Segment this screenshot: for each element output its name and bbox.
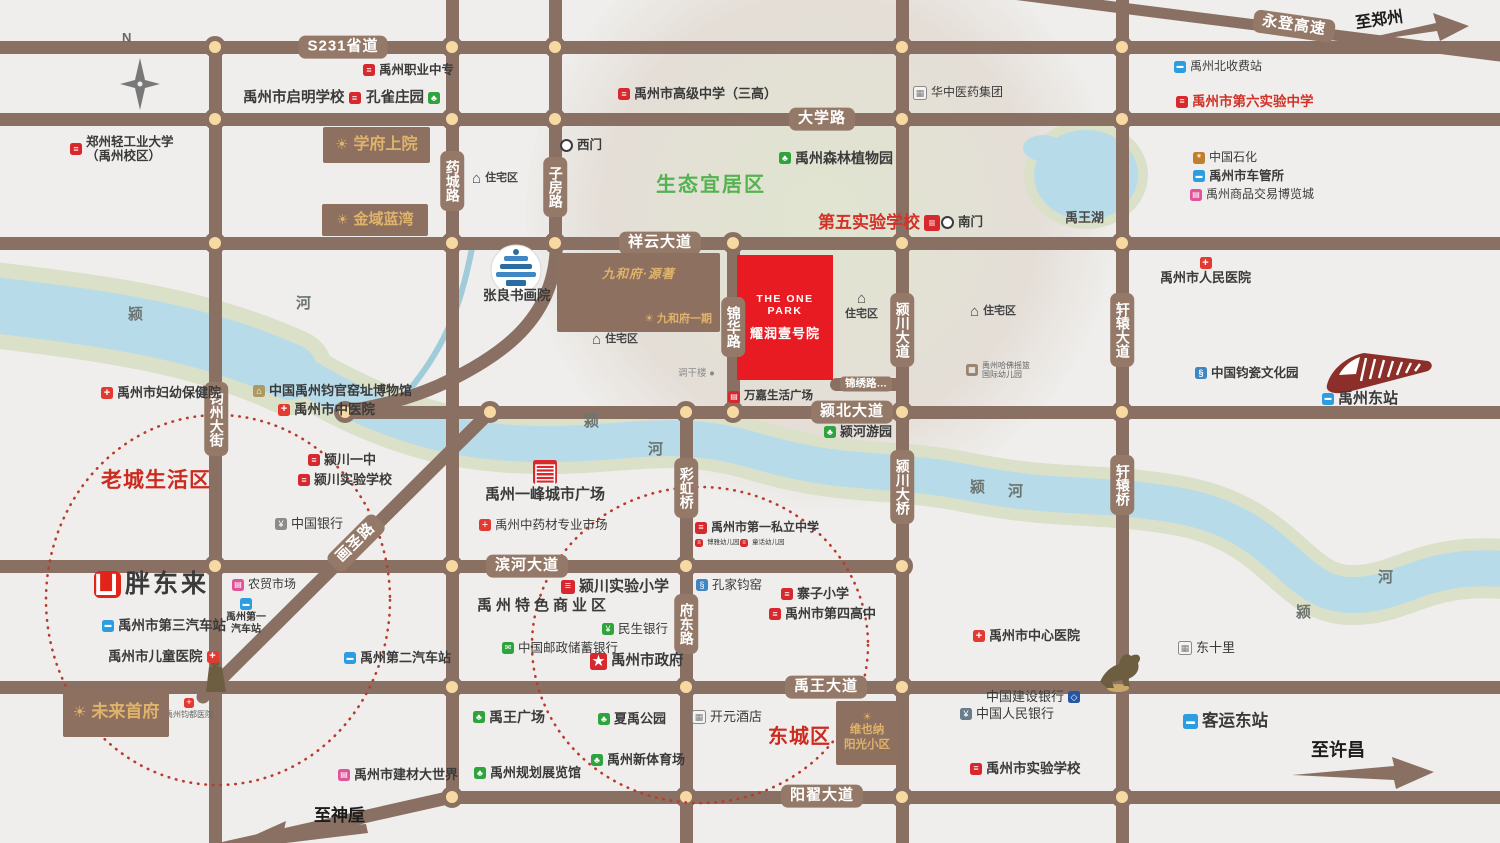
yinghe-riverside-park: ♣颍河游园 xyxy=(824,425,892,440)
huazhong-pharma-group: ▦华中医药集团 xyxy=(913,86,1003,100)
diaoganlou: 调干楼 ● xyxy=(678,369,715,380)
pangdonglai: ⊔胖东来 xyxy=(94,570,209,599)
yuzhou-vocational-school-label: 禹州职业中专 xyxy=(379,63,454,77)
minsheng-bank-bank-icon: ¥ xyxy=(602,623,614,635)
residential-area-4-label: 住宅区 xyxy=(983,305,1016,318)
planning-exhibition-hall-label: 禹州规划展览馆 xyxy=(490,766,581,781)
yingchuan-experimental-primary-school-icon: ≡ xyxy=(561,580,575,594)
yingchuan-no1-middle-school-school-icon: ≡ xyxy=(308,454,320,466)
yuwang-lake-label: 禹王湖 xyxy=(1065,211,1104,226)
jiuhefu-block-sub-label: 九和府一期 xyxy=(657,313,712,326)
kongjia-kiln: §孔家钧窑 xyxy=(696,578,762,592)
yingchuan-experimental-school-school-icon: ≡ xyxy=(298,474,310,486)
kaiyuan-hotel-building-icon: ▦ xyxy=(692,710,706,724)
west-gate-gate-icon xyxy=(560,139,573,152)
east-bus-station-bus-icon: ▬ xyxy=(1183,714,1198,729)
residential-area-1: ⌂住宅区 xyxy=(472,171,518,186)
no1-private-middle-school-label: 禹州市第一私立中学 xyxy=(711,521,819,535)
map-canvas: N THE ONE PARK 耀润壹号院 S231省道大学路祥云大道颍北大道滨河… xyxy=(0,0,1500,843)
kindergarten-1-school-icon: ≡ xyxy=(695,539,703,547)
pangdonglai-cart-icon: ⊔ xyxy=(94,571,121,598)
compass: N xyxy=(122,30,131,45)
east-bus-station: ▬客运东站 xyxy=(1183,712,1268,731)
west-gate: 西门 xyxy=(560,138,602,152)
qiming-school-school-icon: ≡ xyxy=(349,92,361,104)
to-shenhou-label: 至神垕 xyxy=(314,801,365,826)
yuzhou-senior-high-school-label: 禹州市高级中学（三高） xyxy=(634,87,777,102)
yifeng-city-plaza: ▤禹州一峰城市广场 xyxy=(485,460,605,503)
building-materials-world-label: 禹州市建材大世界 xyxy=(354,768,458,783)
residential-area-4-house-icon: ⌂ xyxy=(970,304,979,319)
planning-exhibition-hall: ♣禹州规划展览馆 xyxy=(474,766,581,781)
dongshili: ▦东十里 xyxy=(1178,641,1235,656)
no1-private-middle-school: ≡禹州市第一私立中学 xyxy=(695,521,819,535)
new-stadium-tree-icon: ♣ xyxy=(591,754,603,766)
caihong-bridge-label: 彩虹桥 xyxy=(674,458,698,518)
jinyu-lanwan-block: ☀金域蓝湾 xyxy=(322,204,428,236)
zhaizi-primary-school-label: 寨子小学 xyxy=(797,587,849,602)
yingchuan-avenue-label: 颍川大道 xyxy=(890,293,914,367)
south-gate-gate-icon xyxy=(941,216,954,229)
river-name-char-4: 颍 xyxy=(970,476,985,497)
xiangyun-avenue-label: 祥云大道 xyxy=(619,232,701,255)
vienna-sunshine-block-label: 阳光小区 xyxy=(844,739,890,753)
yaocheng-road-label: 药城路 xyxy=(440,151,464,211)
yongdeng-expressway-label: 永登高速 xyxy=(1252,9,1336,43)
dongshili-label: 东十里 xyxy=(1196,641,1235,656)
city-government: ★禹州市政府 xyxy=(590,653,684,670)
eco-livable-area-label: 生态宜居区 xyxy=(656,168,766,197)
new-stadium: ♣禹州新体育场 xyxy=(591,753,685,768)
jundu-hospital-label: 禹州钧都医院 xyxy=(165,710,213,719)
building-materials-world-market-icon: ▤ xyxy=(338,769,350,781)
residential-area-3-label: 住宅区 xyxy=(845,308,878,321)
yifeng-city-plaza-label: 禹州一峰城市广场 xyxy=(485,486,605,503)
yuwang-square-label: 禹王广场 xyxy=(489,709,545,725)
city-government-label: 禹州市政府 xyxy=(611,653,684,670)
central-hospital: +禹州市中心医院 xyxy=(973,629,1080,644)
children-hospital: 禹州市儿童医院+ xyxy=(108,649,219,665)
postal-savings-bank-post-icon: ✉ xyxy=(502,642,514,654)
tcm-hospital-label: 禹州市中医院 xyxy=(294,402,375,418)
residential-area-2: ⌂住宅区 xyxy=(592,332,638,347)
wanjia-life-plaza-label: 万嘉生活广场 xyxy=(744,390,813,403)
children-hospital-hospital-icon: + xyxy=(207,651,219,663)
east-bus-station-label: 客运东站 xyxy=(1202,712,1268,731)
south-gate-label: 南门 xyxy=(958,215,983,229)
central-hospital-hospital-icon: + xyxy=(973,630,985,642)
pboc-bank: ¥中国人民银行 xyxy=(960,707,1054,722)
yangzhai-avenue-label: 阳翟大道 xyxy=(781,785,863,808)
zhengzhou-light-industry-university-school-icon: ≡ xyxy=(70,143,82,155)
residential-area-3-house-icon: ⌂ xyxy=(857,291,866,306)
yuwang-avenue-label: 禹王大道 xyxy=(785,676,867,699)
experimental-school-school-icon: ≡ xyxy=(970,763,982,775)
qiming-school-label: 禹州市启明学校 xyxy=(243,90,345,107)
yingchuan-experimental-school: ≡颍川实验学校 xyxy=(298,473,392,488)
no1-private-middle-school-school-icon: ≡ xyxy=(695,522,707,534)
pangdonglai-label: 胖东来 xyxy=(125,570,209,599)
yuwang-square-tree-icon: ♣ xyxy=(473,711,485,723)
tcm-hospital: +禹州市中医院 xyxy=(278,402,375,418)
river-name-char-7: 颍 xyxy=(1296,601,1311,622)
bank-of-china: ¥中国银行 xyxy=(275,517,343,532)
sixth-experimental-middle-school: ≡禹州市第六实验中学 xyxy=(1176,94,1314,110)
xuefu-shangyuan-block: ☀学府上院 xyxy=(323,127,430,163)
kindergarten-2-label: 童话幼儿园 xyxy=(752,539,785,546)
kindergarten-2-school-icon: ≡ xyxy=(740,539,748,547)
forest-botanical-garden: ♣禹州森林植物园 xyxy=(779,150,893,166)
compass-north-label: N xyxy=(122,30,131,45)
forest-botanical-garden-label: 禹州森林植物园 xyxy=(795,150,893,166)
zhengzhou-light-industry-university: ≡郑州轻工业大学（禹州校区） xyxy=(70,135,174,164)
weilai-shoufu-block-logo-icon: ☀ xyxy=(73,705,87,720)
yinghe-riverside-park-tree-icon: ♣ xyxy=(824,426,836,438)
no2-bus-station-bus-icon: ▬ xyxy=(344,652,356,664)
yingchuan-experimental-primary-label: 颍川实验小学 xyxy=(579,578,669,595)
residential-area-3: ⌂住宅区 xyxy=(845,291,878,321)
peacock-manor-tree-icon: ♣ xyxy=(428,92,440,104)
tcm-materials-market-label: 禹州中药材专业市场 xyxy=(495,518,608,532)
river-name-char-0: 颍 xyxy=(128,303,143,324)
zhengzhou-light-industry-university-label: 郑州轻工业大学（禹州校区） xyxy=(86,135,174,164)
kindergarten-1: ≡博雅幼儿园 xyxy=(695,539,740,547)
river-name-char-5: 河 xyxy=(1008,480,1023,501)
yingchuan-bridge-label: 颍川大桥 xyxy=(890,450,914,524)
yuzhou-senior-high-school-school-icon: ≡ xyxy=(618,88,630,100)
commodity-expo-city-expo-icon: ▤ xyxy=(1190,189,1202,201)
vienna-sunshine-block-logo-icon: ☀ xyxy=(862,713,871,723)
farmers-market-market-icon: ▤ xyxy=(232,579,244,591)
maternal-child-health-hospital-hospital-icon: + xyxy=(101,387,113,399)
farmers-market: ▤农贸市场 xyxy=(232,578,296,592)
bank-of-china-label: 中国银行 xyxy=(291,517,343,532)
wanjia-life-plaza-mall-icon: ▤ xyxy=(728,391,740,403)
sinopec: *中国石化 xyxy=(1193,151,1257,165)
xuefu-shangyuan-block-label: 学府上院 xyxy=(353,135,417,154)
river-name-char-1: 河 xyxy=(296,292,311,313)
west-gate-label: 西门 xyxy=(577,138,602,152)
fifth-experimental-school-school-icon: ≡ xyxy=(924,215,940,231)
yuwang-lake-label-label: 禹王湖 xyxy=(1065,211,1104,226)
zhaizi-primary-school: ≡寨子小学 xyxy=(781,587,849,602)
sixth-experimental-middle-school-label: 禹州市第六实验中学 xyxy=(1192,94,1314,110)
central-hospital-label: 禹州市中心医院 xyxy=(989,629,1080,644)
jiuhefu-block-sub-row: ☀九和府一期 xyxy=(565,313,712,326)
kaiyuan-hotel-label: 开元酒店 xyxy=(710,710,762,725)
peoples-hospital: +禹州市人民医院 xyxy=(1160,257,1251,286)
minsheng-bank-label: 民生银行 xyxy=(618,622,668,636)
no4-high-school: ≡禹州市第四高中 xyxy=(769,607,876,622)
no3-bus-station-bus-icon: ▬ xyxy=(102,620,114,632)
no2-bus-station-label: 禹州第二汽车站 xyxy=(360,651,451,666)
yinghe-riverside-park-label: 颍河游园 xyxy=(840,425,892,440)
kongjia-kiln-label: 孔家钧窑 xyxy=(712,578,762,592)
yingbei-avenue-label: 颍北大道 xyxy=(811,401,893,424)
zifang-road-label: 子房路 xyxy=(543,157,567,217)
kindergarten-2: ≡童话幼儿园 xyxy=(740,539,785,547)
ccb-bank-ccb-icon: ◇ xyxy=(1068,691,1080,703)
yuzhou-east-station-train-icon: ▬ xyxy=(1322,393,1334,405)
project-name-en: THE ONE PARK xyxy=(737,293,833,317)
residential-area-2-label: 住宅区 xyxy=(605,333,638,346)
xuanyuan-avenue-label: 轩辕大道 xyxy=(1110,293,1134,367)
forest-botanical-garden-tree-icon: ♣ xyxy=(779,152,791,164)
new-stadium-label: 禹州新体育场 xyxy=(607,753,685,768)
jun-kiln-site-museum: ⌂中国禹州钧官窑址博物馆 xyxy=(253,384,412,399)
no2-bus-station: ▬禹州第二汽车站 xyxy=(344,651,451,666)
kongjia-kiln-vase-icon: § xyxy=(696,579,708,591)
weilai-shoufu-block-label: 未来首府 xyxy=(91,702,159,722)
experimental-school: ≡禹州市实验学校 xyxy=(970,761,1081,777)
yingchuan-no1-middle-school: ≡颍川一中 xyxy=(308,453,376,468)
label-layer: N THE ONE PARK 耀润壹号院 S231省道大学路祥云大道颍北大道滨河… xyxy=(0,0,1500,843)
residential-area-2-house-icon: ⌂ xyxy=(592,332,601,347)
children-hospital-label: 禹州市儿童医院 xyxy=(108,649,203,665)
building-materials-world: ▤禹州市建材大世界 xyxy=(338,768,458,783)
vehicle-administration: ▬禹州市车管所 xyxy=(1193,169,1284,183)
north-toll-station-toll-icon: ▬ xyxy=(1174,61,1186,73)
farmers-market-label: 农贸市场 xyxy=(248,578,296,592)
no3-bus-station-label: 禹州市第三汽车站 xyxy=(118,618,226,634)
huazhong-pharma-group-building-icon: ▦ xyxy=(913,86,927,100)
junci-culture-park: §中国钧瓷文化园 xyxy=(1195,366,1299,380)
vienna-sunshine-block-label: 维也纳 xyxy=(850,724,885,738)
kaiyuan-hotel: ▦开元酒店 xyxy=(692,710,762,725)
tcm-materials-market-hospital-icon: + xyxy=(479,519,491,531)
jundu-hospital: +禹州钧都医院 xyxy=(165,698,213,719)
jinxiu-road-label: 锦绣路… xyxy=(840,376,892,391)
peoples-hospital-hospital-icon: + xyxy=(1200,257,1212,269)
jiuhefu-block-script-label: 九和府·源著 xyxy=(565,267,712,282)
vienna-sunshine-block: ☀维也纳阳光小区 xyxy=(836,701,898,765)
jinhua-road-label: 锦华路 xyxy=(721,297,745,357)
jinyu-lanwan-block-label: 金域蓝湾 xyxy=(354,211,414,229)
commodity-expo-city-label: 禹州商品交易博览城 xyxy=(1206,188,1314,202)
yuzhou-vocational-school: ≡禹州职业中专 xyxy=(363,63,454,77)
residential-area-4: ⌂住宅区 xyxy=(970,304,1016,319)
jiuhefu-block-logo-icon: ☀ xyxy=(644,314,654,325)
vehicle-administration-label: 禹州市车管所 xyxy=(1209,169,1284,183)
xiayu-park-tree-icon: ♣ xyxy=(598,713,610,725)
jiuhefu-block: 九和府·源著☀九和府一期 xyxy=(557,253,720,332)
north-toll-station: ▬禹州北收费站 xyxy=(1174,60,1262,74)
peacock-manor: 孔雀庄园♣ xyxy=(366,90,440,107)
river-name-char-6: 河 xyxy=(1378,566,1393,587)
pboc-bank-pboc-icon: ¥ xyxy=(960,708,972,720)
south-gate: 南门 xyxy=(941,215,983,229)
ccb-bank-label: 中国建设银行 xyxy=(986,690,1064,705)
pboc-bank-label: 中国人民银行 xyxy=(976,707,1054,722)
yifeng-city-plaza-plaza-icon: ▤ xyxy=(533,460,557,484)
xuefu-shangyuan-block-logo-icon: ☀ xyxy=(336,138,349,152)
tcm-hospital-hospital-icon: + xyxy=(278,404,290,416)
xiayu-park-label: 夏禹公园 xyxy=(614,712,666,727)
commodity-expo-city: ▤禹州商品交易博览城 xyxy=(1190,188,1314,202)
no1-bus-station: ▬禹州第一汽车站 xyxy=(226,598,266,635)
yuzhou-east-station: ▬禹州东站 xyxy=(1322,390,1398,407)
yuzhou-east-station-label: 禹州东站 xyxy=(1338,390,1398,407)
yuzhou-senior-high-school: ≡禹州市高级中学（三高） xyxy=(618,87,777,102)
sinopec-label: 中国石化 xyxy=(1209,151,1257,165)
project-name-cn: 耀润壹号院 xyxy=(750,323,820,342)
jun-kiln-site-museum-label: 中国禹州钧官窑址博物馆 xyxy=(269,384,412,399)
bank-of-china-boc-icon: ¥ xyxy=(275,518,287,530)
specialty-commercial-area: 禹州特色商业区 xyxy=(477,597,610,614)
zhaizi-primary-school-school-icon: ≡ xyxy=(781,588,793,600)
river-name-char-3: 河 xyxy=(648,438,663,459)
junci-culture-park-label: 中国钧瓷文化园 xyxy=(1211,366,1299,380)
no3-bus-station: ▬禹州市第三汽车站 xyxy=(102,618,226,634)
ccb-bank: 中国建设银行◇ xyxy=(986,690,1080,705)
peacock-manor-label: 孔雀庄园 xyxy=(366,90,424,107)
weilai-shoufu-block: ☀未来首府 xyxy=(63,688,169,737)
to-zhengzhou-label: 至郑州 xyxy=(1354,3,1405,33)
harvard-cradle-kindergarten-label: 禹州哈佛摇篮国际幼儿园 xyxy=(982,361,1030,379)
sixth-experimental-middle-school-school-icon: ≡ xyxy=(1176,96,1188,108)
peoples-hospital-label: 禹州市人民医院 xyxy=(1160,271,1251,286)
old-town-area-label: 老城生活区 xyxy=(101,464,211,494)
dongshili-building-icon: ▦ xyxy=(1178,641,1192,655)
kindergarten-1-label: 博雅幼儿园 xyxy=(707,539,740,546)
vehicle-administration-traffic-icon: ▬ xyxy=(1193,170,1205,182)
no4-high-school-school-icon: ≡ xyxy=(769,608,781,620)
junci-culture-park-vase-icon: § xyxy=(1195,367,1207,379)
zhangliang-academy: 张良书画院 xyxy=(483,288,551,304)
binhe-avenue-label: 滨河大道 xyxy=(486,555,568,578)
east-city-area-label: 东城区 xyxy=(768,720,831,749)
tcm-materials-market: +禹州中药材专业市场 xyxy=(479,518,608,532)
fifth-experimental-school: 第五实验学校≡ xyxy=(818,213,940,233)
the-one-park-block: THE ONE PARK 耀润壹号院 xyxy=(737,255,833,380)
jundu-hospital-hospital-icon: + xyxy=(184,698,194,708)
city-government-gov-icon: ★ xyxy=(590,653,607,670)
yingchuan-experimental-school-label: 颍川实验学校 xyxy=(314,473,392,488)
north-toll-station-label: 禹州北收费站 xyxy=(1190,60,1262,74)
specialty-commercial-area-label: 禹州特色商业区 xyxy=(477,597,610,614)
experimental-school-label: 禹州市实验学校 xyxy=(986,761,1081,777)
fifth-experimental-school-label: 第五实验学校 xyxy=(818,213,920,233)
residential-area-1-label: 住宅区 xyxy=(485,172,518,185)
xuanyuan-bridge-label: 轩辕桥 xyxy=(1110,455,1134,515)
river-name-char-2: 颍 xyxy=(584,410,599,431)
to-xuchang-label: 至许昌 xyxy=(1311,736,1365,762)
no1-bus-station-label: 禹州第一汽车站 xyxy=(226,612,266,635)
maternal-child-health-hospital-label: 禹州市妇幼保健院 xyxy=(117,386,221,401)
s231-label: S231省道 xyxy=(298,36,387,59)
daxue-road-label: 大学路 xyxy=(789,108,855,131)
planning-exhibition-hall-tree-icon: ♣ xyxy=(474,767,486,779)
yingchuan-experimental-primary: ≡颍川实验小学 xyxy=(561,578,669,595)
maternal-child-health-hospital: +禹州市妇幼保健院 xyxy=(101,386,221,401)
wanjia-life-plaza: ▤万嘉生活广场 xyxy=(728,390,813,403)
no4-high-school-label: 禹州市第四高中 xyxy=(785,607,876,622)
no1-bus-station-bus-icon: ▬ xyxy=(240,598,252,610)
residential-area-1-house-icon: ⌂ xyxy=(472,171,481,186)
qiming-school: 禹州市启明学校≡ xyxy=(243,90,361,107)
zhangliang-academy-label: 张良书画院 xyxy=(483,288,551,304)
jinyu-lanwan-block-logo-icon: ☀ xyxy=(336,213,348,227)
minsheng-bank: ¥民生银行 xyxy=(602,622,668,636)
harvard-cradle-kindergarten-kindergarten-icon: ▦ xyxy=(966,364,978,376)
yuzhou-vocational-school-school-icon: ≡ xyxy=(363,64,375,76)
harvard-cradle-kindergarten: ▦禹州哈佛摇篮国际幼儿园 xyxy=(966,361,1030,379)
yuwang-square: ♣禹王广场 xyxy=(473,709,545,725)
xiayu-park: ♣夏禹公园 xyxy=(598,712,666,727)
yingchuan-no1-middle-school-label: 颍川一中 xyxy=(324,453,376,468)
jun-kiln-site-museum-museum-icon: ⌂ xyxy=(253,385,265,397)
huazhong-pharma-group-label: 华中医药集团 xyxy=(931,86,1003,100)
fudong-road-label: 府东路 xyxy=(674,594,698,654)
sinopec-petrol-icon: * xyxy=(1193,152,1205,164)
diaoganlou-label: 调干楼 ● xyxy=(678,369,715,380)
